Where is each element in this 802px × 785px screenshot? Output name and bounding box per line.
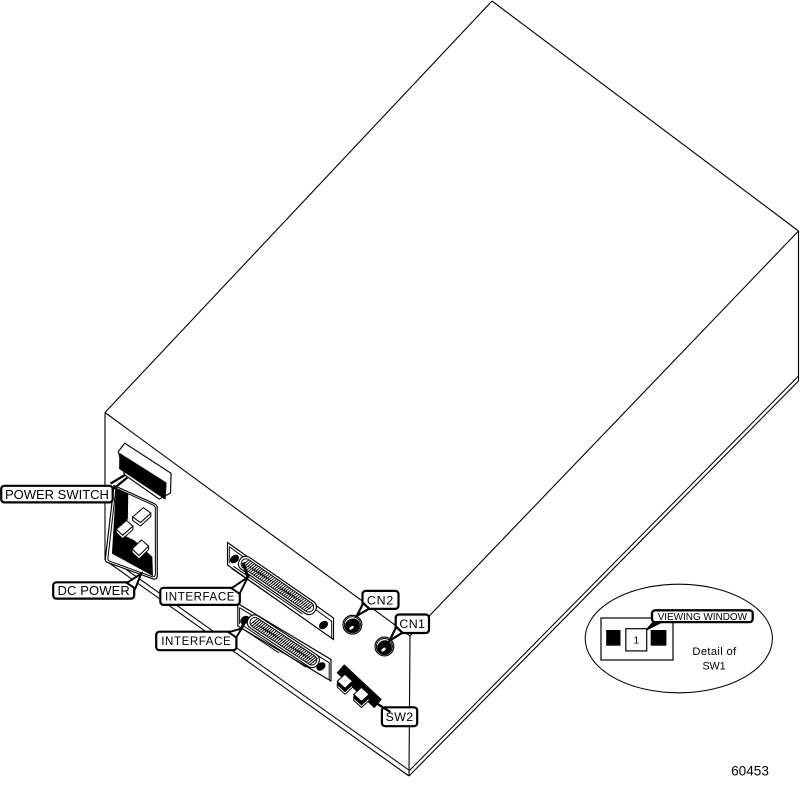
svg-text:CN2: CN2 bbox=[367, 593, 394, 607]
svg-text:1: 1 bbox=[634, 636, 640, 647]
svg-text:Detail of: Detail of bbox=[692, 646, 737, 658]
svg-text:VIEWING WINDOW: VIEWING WINDOW bbox=[658, 612, 748, 623]
svg-text:60453: 60453 bbox=[731, 764, 769, 779]
svg-text:INTERFACE: INTERFACE bbox=[165, 591, 235, 604]
svg-text:INTERFACE: INTERFACE bbox=[161, 635, 231, 648]
svg-text:SW1: SW1 bbox=[702, 661, 725, 673]
svg-text:CN1: CN1 bbox=[399, 617, 425, 631]
svg-text:POWER SWITCH: POWER SWITCH bbox=[5, 487, 109, 502]
svg-text:DC POWER: DC POWER bbox=[58, 583, 130, 598]
